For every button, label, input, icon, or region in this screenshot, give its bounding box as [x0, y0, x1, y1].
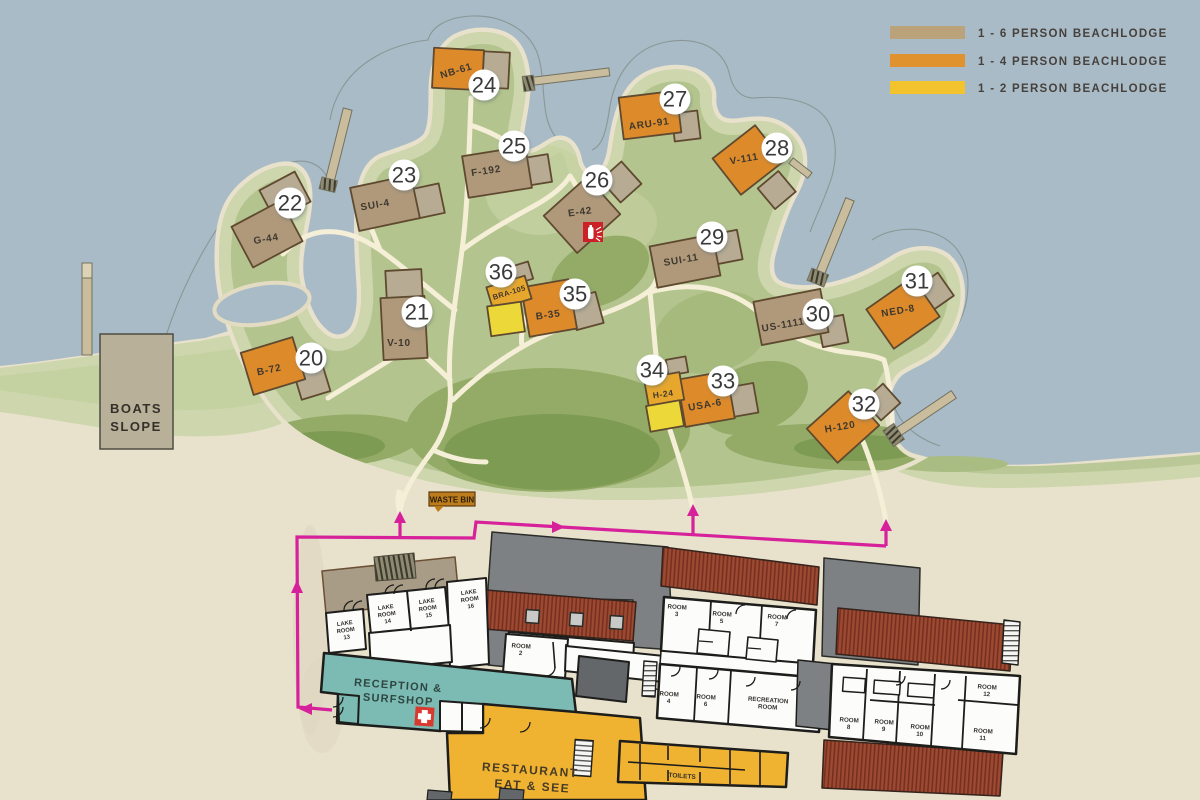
svg-text:1 - 6 PERSON BEACHLODGE: 1 - 6 PERSON BEACHLODGE	[978, 28, 1168, 40]
svg-text:25: 25	[502, 134, 526, 159]
svg-text:31: 31	[905, 269, 929, 294]
svg-text:23: 23	[392, 163, 416, 188]
svg-text:1 - 4 PERSON BEACHLODGE: 1 - 4 PERSON BEACHLODGE	[978, 56, 1168, 68]
svg-text:29: 29	[700, 225, 724, 250]
svg-text:1 - 2 PERSON BEACHLODGE: 1 - 2 PERSON BEACHLODGE	[978, 83, 1168, 95]
svg-text:SLOPE: SLOPE	[110, 419, 162, 434]
svg-text:27: 27	[663, 87, 687, 112]
svg-text:21: 21	[405, 300, 429, 325]
svg-text:WASTE BIN: WASTE BIN	[430, 496, 475, 505]
svg-text:BOATS: BOATS	[110, 401, 162, 416]
svg-text:28: 28	[765, 136, 789, 161]
svg-text:34: 34	[640, 358, 664, 383]
svg-text:24: 24	[472, 73, 496, 98]
svg-text:30: 30	[806, 302, 830, 327]
svg-text:26: 26	[585, 168, 609, 193]
svg-text:20: 20	[299, 346, 323, 371]
svg-text:32: 32	[852, 392, 876, 417]
svg-text:V-10: V-10	[387, 338, 411, 349]
svg-text:33: 33	[711, 369, 735, 394]
svg-text:22: 22	[278, 191, 302, 216]
svg-text:35: 35	[563, 282, 587, 307]
svg-text:36: 36	[489, 260, 513, 285]
